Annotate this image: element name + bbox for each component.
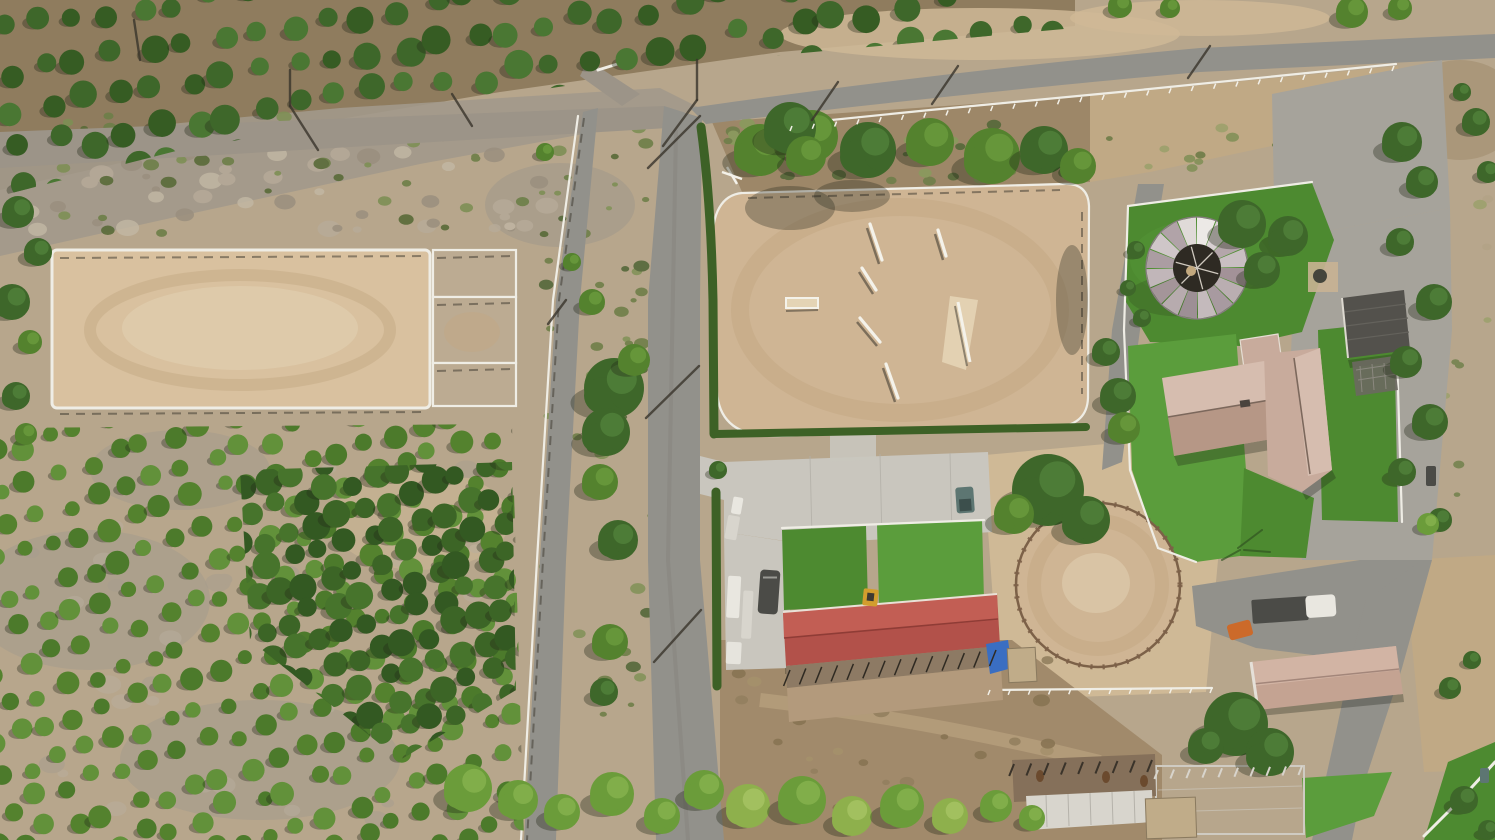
orchard-tree <box>62 710 82 730</box>
orchard-tree <box>232 731 247 746</box>
scrub-bush <box>1455 362 1464 368</box>
tractor-cab <box>867 593 875 602</box>
tree-canopy-highlight <box>1168 0 1178 10</box>
orchard-tree <box>450 431 473 454</box>
orchard-tree <box>1 66 24 89</box>
orchard-tree <box>58 567 78 587</box>
orchard-tree <box>133 791 150 808</box>
orchard-tree <box>343 561 362 580</box>
orchard-tree <box>242 759 264 781</box>
orchard-tree <box>251 57 269 75</box>
tree-canopy-highlight <box>13 385 27 399</box>
orchard-tree <box>442 551 470 579</box>
orchard-tree <box>6 134 28 156</box>
tree-canopy-highlight <box>606 628 624 646</box>
feed-shed-group <box>1007 647 1037 682</box>
scrub-bush <box>1041 739 1055 749</box>
orchard-tree <box>165 642 182 659</box>
orchard-tree <box>23 782 45 804</box>
tree-canopy-highlight <box>589 292 602 305</box>
orchard-tree <box>279 615 300 636</box>
scrub-bush <box>621 266 629 272</box>
orchard-tree <box>359 73 385 99</box>
orchard-tree <box>284 633 309 658</box>
orchard-tree <box>21 653 43 675</box>
orchard-tree <box>162 602 182 622</box>
tree-canopy-highlight <box>985 134 1013 162</box>
orchard-tree <box>148 109 176 137</box>
orchard-tree <box>501 703 523 725</box>
grass-paddock-west <box>782 526 868 610</box>
hedge-pad-west <box>716 492 717 686</box>
scrub-bush <box>1473 200 1487 210</box>
orchard-tree <box>384 426 407 449</box>
scrub-bush <box>504 222 515 230</box>
orchard-tree <box>192 812 213 833</box>
orchard-tree <box>216 27 238 49</box>
tree-canopy-highlight <box>613 524 633 544</box>
orchard-tree <box>291 89 312 110</box>
scrub-bush <box>724 138 733 144</box>
orchard-tree <box>95 6 117 28</box>
tree-canopy-highlight <box>1114 382 1132 400</box>
orchard-tree <box>403 572 427 596</box>
orchard-tree <box>94 698 110 714</box>
orchard-tree <box>405 592 428 615</box>
scrub-bush <box>28 223 47 236</box>
scrub-bush <box>427 218 440 227</box>
orchard-tree <box>2 693 19 710</box>
scrub-bush <box>1009 737 1021 745</box>
orchard-tree <box>419 629 439 649</box>
orchard-tree <box>383 813 399 829</box>
orchard-tree <box>210 105 240 135</box>
orchard-tree <box>5 803 23 821</box>
orchard-tree <box>218 476 232 490</box>
orchard-tree <box>395 538 417 560</box>
orchard-tree <box>816 1 844 29</box>
scrub-bush <box>747 677 761 687</box>
orchard-tree <box>279 523 298 542</box>
tree-canopy-highlight <box>1425 515 1436 526</box>
orchard-tree <box>332 528 356 552</box>
scrub-bush <box>591 342 604 351</box>
scrub-bush <box>330 147 350 161</box>
orchard-tree <box>111 123 136 148</box>
scrub-bush <box>441 225 450 231</box>
tree-canopy-highlight <box>796 781 820 805</box>
scrub-bush <box>143 159 159 170</box>
orchard-tree <box>212 591 227 606</box>
scrub-bush <box>638 138 653 148</box>
scrub-bush <box>1187 164 1198 172</box>
orchard-tree <box>411 803 429 821</box>
scrub-bush <box>810 768 818 773</box>
scrub-bush <box>218 173 236 185</box>
scrub-bush <box>402 180 411 187</box>
orchard-tree <box>422 26 451 55</box>
orchard-tree <box>221 699 236 714</box>
orchard-tree <box>229 546 245 562</box>
jump-shadow <box>786 310 818 311</box>
orchard-tree <box>409 772 425 788</box>
scrub-bush <box>193 190 212 203</box>
scrub-bush <box>1144 164 1152 170</box>
scrub-bush <box>611 154 619 160</box>
scrub-bush <box>573 629 586 638</box>
orchard-tree <box>12 718 33 739</box>
orchard-tree <box>206 61 233 88</box>
dump-truck-bed <box>1251 596 1309 624</box>
orchard-tree <box>455 576 473 594</box>
orchard-tree <box>1013 16 1031 34</box>
orchard-tree <box>185 774 205 794</box>
orchard-tree <box>418 442 435 459</box>
orchard-tree <box>62 9 80 27</box>
scrub-bush <box>176 156 187 163</box>
scrub-bush <box>1482 243 1492 250</box>
tree-canopy-highlight <box>784 107 810 133</box>
scrub-bush <box>1195 151 1205 158</box>
orchard-tree <box>385 2 408 25</box>
orchard-tree <box>319 8 338 27</box>
orchard-tree <box>399 657 424 682</box>
orchard-tree <box>638 5 659 26</box>
orchard-tree <box>323 50 341 68</box>
orchard-tree <box>346 7 373 34</box>
tree-canopy-highlight <box>1236 205 1260 229</box>
horse <box>1140 775 1148 787</box>
scrub-bush <box>50 201 66 212</box>
orchard-tree <box>425 649 445 669</box>
orchard-tree <box>148 651 163 666</box>
orchard-tree <box>333 766 352 785</box>
tree-canopy-highlight <box>1074 152 1092 170</box>
orchard-tree <box>88 805 111 828</box>
orchard-tree <box>69 80 96 107</box>
tree-canopy-highlight <box>1264 733 1288 757</box>
orchard-tree <box>153 674 172 693</box>
orchard-tree <box>188 589 205 606</box>
tree-canopy-highlight <box>35 241 49 255</box>
scrub-bush <box>146 696 160 706</box>
scrub-bush <box>460 203 473 212</box>
tree-canopy-highlight <box>630 347 646 363</box>
tree-canopy-highlight <box>8 288 26 306</box>
scrub-bush <box>806 757 813 762</box>
scrub-bush <box>941 734 949 739</box>
orchard-tree <box>210 660 232 682</box>
orchard-tree <box>165 711 180 726</box>
orchard-tree <box>256 97 279 120</box>
tree-canopy-highlight <box>1103 341 1117 355</box>
mower <box>1480 768 1489 783</box>
orchard-tree <box>131 620 149 638</box>
orchard-tree <box>49 746 66 763</box>
scrub-bush <box>237 197 253 208</box>
orchard-tree <box>121 582 136 597</box>
orchard-tree <box>355 434 372 451</box>
orchard-tree <box>99 40 121 62</box>
scrub-bush <box>156 229 167 237</box>
orchard-tree <box>345 582 373 610</box>
scrub-bush <box>194 155 210 166</box>
orchard-tree <box>266 493 285 512</box>
horse <box>1036 770 1044 782</box>
orchard-tree <box>88 482 110 504</box>
orchard-tree <box>68 528 88 548</box>
scrub-bush <box>919 168 932 177</box>
orchard-tree <box>270 782 294 806</box>
orchard-tree <box>128 504 147 523</box>
orchard-tree <box>459 516 485 542</box>
scrub-bush <box>886 177 897 184</box>
orchard-tree <box>26 7 49 30</box>
scrub-bush <box>394 146 412 158</box>
orchard-tree <box>166 528 185 547</box>
orchard-tree <box>115 764 130 779</box>
orchard-tree <box>323 500 351 528</box>
orchard-tree <box>428 736 443 751</box>
tree-canopy-highlight <box>1402 349 1418 365</box>
scrub-bush <box>1483 317 1491 323</box>
orchard-tree <box>389 691 412 714</box>
orchard-tree <box>285 544 305 564</box>
scrub-bush <box>148 191 164 202</box>
orchard-tree <box>171 33 191 53</box>
orchard-tree <box>13 471 35 493</box>
tractor-group <box>862 588 879 606</box>
scrub-bush <box>222 157 234 166</box>
orchard-tree <box>308 540 326 558</box>
scrub-bush <box>535 198 558 214</box>
orchard-tree <box>433 72 452 91</box>
tree-canopy-highlight <box>600 413 624 437</box>
orchard-tree <box>43 95 65 117</box>
scrub-bush <box>606 206 612 210</box>
orchard-tree <box>483 657 505 679</box>
scrub-bush <box>540 231 549 237</box>
scrub-bush <box>1106 136 1113 141</box>
orchard-tree <box>206 769 227 790</box>
orchard-tree <box>25 585 39 599</box>
orchard-tree <box>359 748 374 763</box>
orchard-tree <box>59 599 80 620</box>
orchard-tree <box>495 744 512 761</box>
tree-canopy-highlight <box>596 468 614 486</box>
orchard-tree <box>478 489 499 510</box>
tree-canopy-highlight <box>801 140 821 160</box>
orchard-tree <box>852 5 880 33</box>
scrub-bush <box>630 583 645 594</box>
orchard-tree <box>355 498 375 518</box>
small-shed <box>1145 797 1196 839</box>
scrub-bush <box>544 258 553 264</box>
orchard-tree <box>51 124 73 146</box>
scrub-bush <box>530 176 548 189</box>
orchard-tree <box>132 725 152 745</box>
orchard-tree <box>450 642 476 668</box>
orchard-tree <box>37 53 56 72</box>
tree-canopy-highlight <box>1228 698 1260 730</box>
orchard-tree <box>311 474 337 500</box>
orchard-tree <box>280 703 298 721</box>
orchard-tree <box>270 674 293 697</box>
truck-cab <box>1305 594 1336 618</box>
orchard-tree <box>182 562 199 579</box>
orchard-tree <box>258 623 277 642</box>
orchard-tree <box>262 434 283 455</box>
orchard-tree <box>167 741 185 759</box>
orchard-tree <box>185 74 205 94</box>
orchard-tree <box>269 748 289 768</box>
scrub-bush <box>539 190 545 195</box>
scrub-bush <box>313 158 329 169</box>
tree-canopy-highlight <box>1126 282 1134 290</box>
orchard-tree <box>493 23 518 48</box>
orchard-tree <box>469 23 492 46</box>
orchard-tree <box>127 683 147 703</box>
scrub-bush <box>103 112 113 119</box>
orchard-tree <box>116 659 131 674</box>
scrub-bush <box>955 143 965 150</box>
orchard-tree <box>146 575 164 593</box>
orchard-tree <box>596 9 621 34</box>
scrub-bush <box>484 148 505 163</box>
orchard-tree <box>289 574 316 601</box>
scrub-bush <box>142 174 150 180</box>
orchard-tree <box>312 766 329 783</box>
horse <box>1102 771 1110 783</box>
grass-paddock-east <box>877 520 984 604</box>
scrub-bush <box>58 211 70 220</box>
orchard-tree <box>102 726 124 748</box>
orchard-tree <box>142 36 169 63</box>
scrub-bush <box>882 780 890 785</box>
scrub-bush <box>612 182 618 186</box>
orchard-tree <box>201 624 220 643</box>
orchard-tree <box>445 466 463 484</box>
orchard-tree <box>97 519 121 543</box>
orchard-tree <box>178 482 202 506</box>
orchard-tree <box>352 797 374 819</box>
tree-canopy-highlight <box>601 681 615 695</box>
orchard-tree <box>374 787 390 803</box>
orchard-tree <box>394 72 413 91</box>
orchard-tree <box>489 599 512 622</box>
scrub-bush <box>101 226 115 235</box>
orchard-tree <box>191 516 212 537</box>
orchard-tree <box>51 465 67 481</box>
tree-canopy-highlight <box>1461 789 1475 803</box>
tree-canopy-highlight <box>570 255 579 264</box>
scrub-bush <box>353 226 362 232</box>
scrub-bush <box>216 574 232 585</box>
orchard-tree <box>200 727 218 745</box>
scrub-bush <box>274 171 281 176</box>
parked-car <box>1426 466 1436 486</box>
tree-canopy-highlight <box>658 802 676 820</box>
orchard-tree <box>241 503 263 525</box>
tree-canopy-highlight <box>1418 169 1434 185</box>
tree-canopy-highlight <box>847 800 867 820</box>
tree-shadow-on-sand <box>1056 245 1088 355</box>
scrub-bush <box>219 165 232 174</box>
tree-canopy-highlight <box>1140 311 1149 320</box>
orchard-tree <box>484 575 508 599</box>
scrub-bush <box>1159 145 1169 152</box>
orchard-tree <box>147 495 169 517</box>
truck-bed <box>959 499 972 512</box>
tree-canopy-highlight <box>1134 243 1143 252</box>
scrub-bush <box>600 712 607 717</box>
tree-canopy-highlight <box>992 793 1008 809</box>
orchard-tree <box>116 476 135 495</box>
orchard-tree <box>210 449 226 465</box>
tree-canopy-highlight <box>1039 461 1075 497</box>
orchard-tree <box>539 55 558 74</box>
orchard-tree <box>496 542 515 561</box>
tree-canopy-highlight <box>1029 808 1042 821</box>
orchard-tree <box>484 433 501 450</box>
equestrian-ranch-aerial: Aerial drone view of an equestrian ranch… <box>0 0 1495 840</box>
scrub-bush <box>859 759 869 766</box>
scrub-bush <box>314 188 324 195</box>
orchard-tree <box>416 703 442 729</box>
tree-canopy-highlight <box>924 123 948 147</box>
scrub-bush <box>1033 694 1050 706</box>
tree-canopy-highlight <box>1447 679 1458 690</box>
orchard-tree <box>329 619 352 642</box>
scrub-bush <box>493 199 515 214</box>
scrub-bush <box>1454 492 1461 497</box>
tree-canopy-highlight <box>513 784 533 804</box>
orchard-tree <box>679 35 706 62</box>
orchard-tree <box>180 668 203 691</box>
orchard-tree <box>284 17 308 41</box>
tree-canopy-highlight <box>1470 653 1479 662</box>
tree-canopy-highlight <box>558 798 576 816</box>
tree-canopy-highlight <box>462 769 486 793</box>
orchard-tree <box>763 28 784 49</box>
orchard-tree <box>357 614 376 633</box>
orchard-tree <box>58 781 75 798</box>
orchard-tree <box>353 43 380 70</box>
van-group <box>757 569 780 614</box>
orchard-tree <box>137 818 157 838</box>
orchard-tree <box>105 551 129 575</box>
scrub-bush <box>634 673 646 681</box>
orchard-tree <box>185 702 201 718</box>
tree-canopy-highlight <box>1120 415 1136 431</box>
orchard-tree <box>246 22 265 41</box>
scrub-bush <box>773 739 783 746</box>
orchard-tree <box>253 552 281 580</box>
orchard-tree <box>71 635 90 654</box>
orchard-tree <box>323 82 344 103</box>
orchard-tree <box>171 460 188 477</box>
scrub-bush <box>274 194 295 209</box>
orchard-tree <box>324 732 345 753</box>
scrub-bush <box>628 703 634 708</box>
orchard-tree <box>140 465 161 486</box>
scrub-bush <box>471 154 479 160</box>
scrub-bush <box>732 669 746 679</box>
tree-canopy-highlight <box>1426 408 1444 426</box>
scrub-bush <box>554 191 561 196</box>
orchard-tree <box>46 536 61 551</box>
pen-worn-spot <box>444 312 500 352</box>
